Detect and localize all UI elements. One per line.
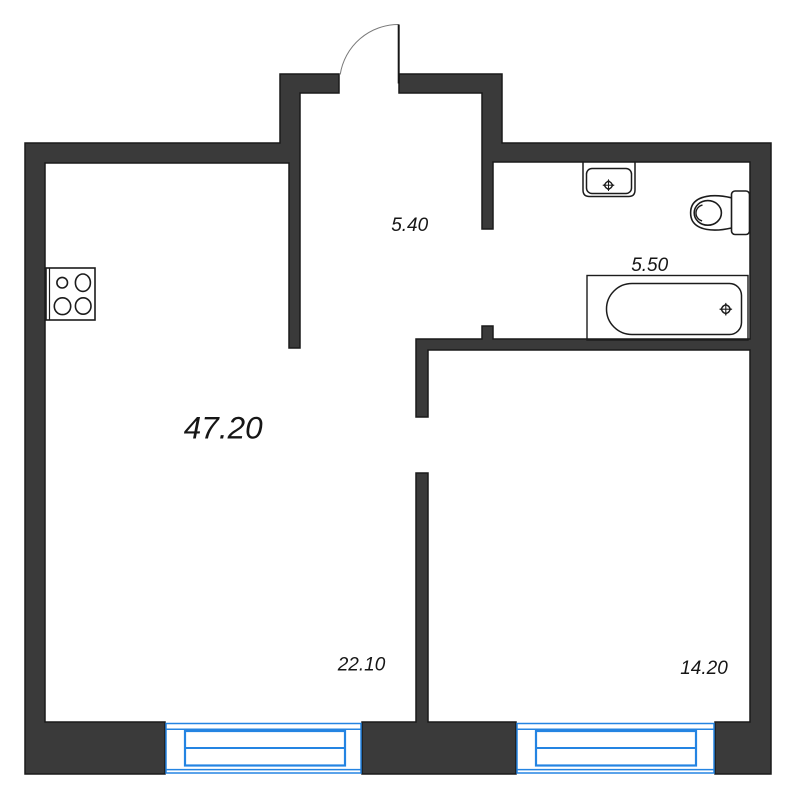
svg-text:5.40: 5.40 (391, 215, 428, 236)
svg-text:14.20: 14.20 (680, 658, 728, 679)
svg-text:47.20: 47.20 (184, 410, 263, 446)
svg-text:5.50: 5.50 (631, 255, 668, 276)
svg-text:22.10: 22.10 (337, 655, 386, 676)
